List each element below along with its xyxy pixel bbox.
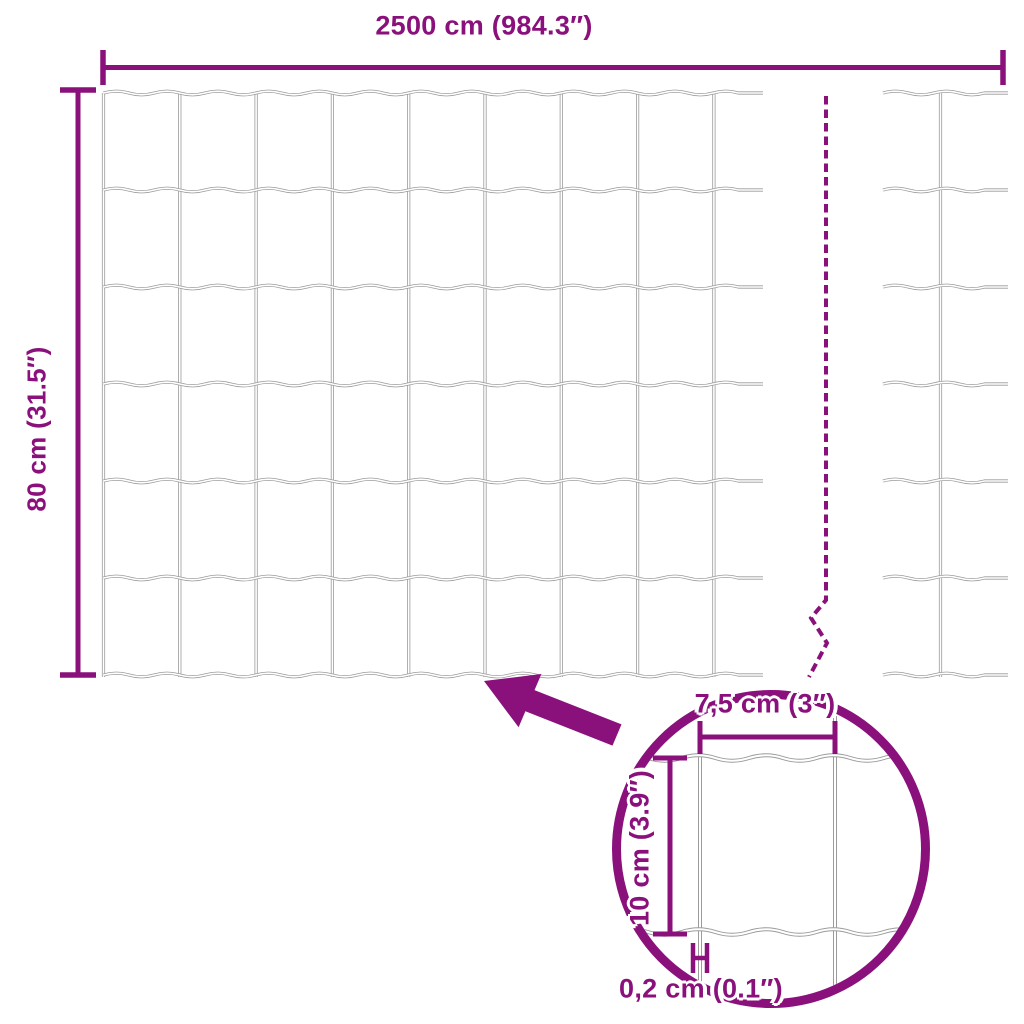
fence-mesh-continuation [883,91,1008,677]
mesh-opening-height-label: 10 cm (3.9″) [625,770,656,926]
fence-dimension-diagram: 2500 cm (984.3″) 80 cm (31.5″) 7,5 cm (3… [0,0,1024,1024]
detail-circle [617,695,926,1004]
width-dimension-line [103,50,1003,85]
height-dimension-line [60,90,96,675]
detail-dimensions [653,721,835,934]
fence-mesh [104,91,764,677]
diagram-canvas [0,0,1024,1024]
zoom-callout-arrow-icon [484,674,622,746]
total-width-label: 2500 cm (984.3″) [375,11,592,42]
mesh-opening-width-label: 7,5 cm (3″) [695,689,836,720]
wire-thickness-label: 0,2 cm (0.1″) [619,974,783,1005]
total-height-label: 80 cm (31.5″) [22,346,53,511]
mesh-break-dashed-line [809,96,827,677]
